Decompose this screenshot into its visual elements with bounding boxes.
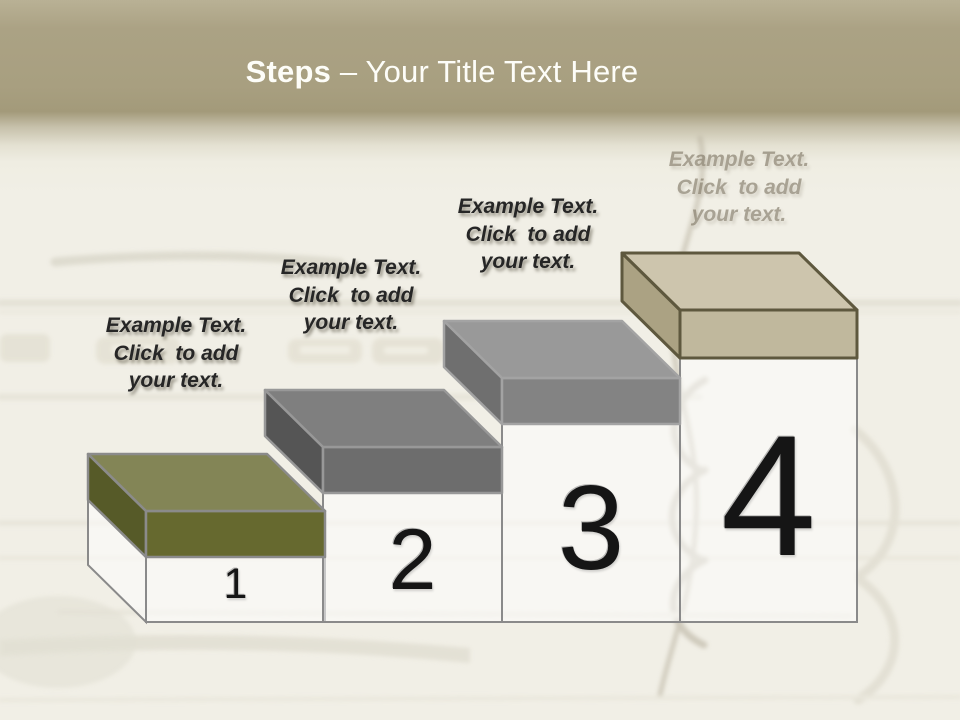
slab-2-front-face: [323, 447, 502, 493]
step-number-3[interactable]: 3: [502, 468, 680, 588]
step-2-slab[interactable]: [265, 390, 502, 493]
step-3-slab[interactable]: [444, 321, 680, 424]
step-number-4[interactable]: 4: [680, 410, 857, 582]
label-line: Click to add: [633, 174, 845, 202]
label-line: Example Text.: [633, 146, 845, 174]
label-line: your text.: [245, 309, 457, 337]
usb-port-slot: [300, 346, 350, 354]
label-line: your text.: [422, 248, 634, 276]
book-arc: [855, 430, 895, 575]
slab-1-front-face: [146, 511, 325, 557]
step-3-label[interactable]: Example Text. Click to add your text.: [422, 193, 634, 276]
label-line: Click to add: [245, 282, 457, 310]
label-line: your text.: [633, 201, 845, 229]
slab-3-front-face: [502, 378, 680, 424]
book-arc: [858, 580, 895, 700]
step-number-2[interactable]: 2: [323, 517, 502, 603]
step-number-1[interactable]: 1: [146, 563, 325, 606]
step-4-label-faded[interactable]: Example Text. Click to add your text.: [633, 146, 845, 229]
slide-canvas: Steps – Your Title Text Here: [0, 0, 960, 720]
label-line: Click to add: [422, 221, 634, 249]
label-line: your text.: [70, 367, 282, 395]
step-4-slab[interactable]: [622, 253, 857, 358]
port-icon: [0, 334, 50, 362]
table-edge-line: [0, 697, 960, 700]
label-line: Example Text.: [422, 193, 634, 221]
firewire-port-slot: [384, 347, 428, 354]
label-line: Click to add: [70, 340, 282, 368]
slab-4-front-face: [680, 310, 857, 358]
